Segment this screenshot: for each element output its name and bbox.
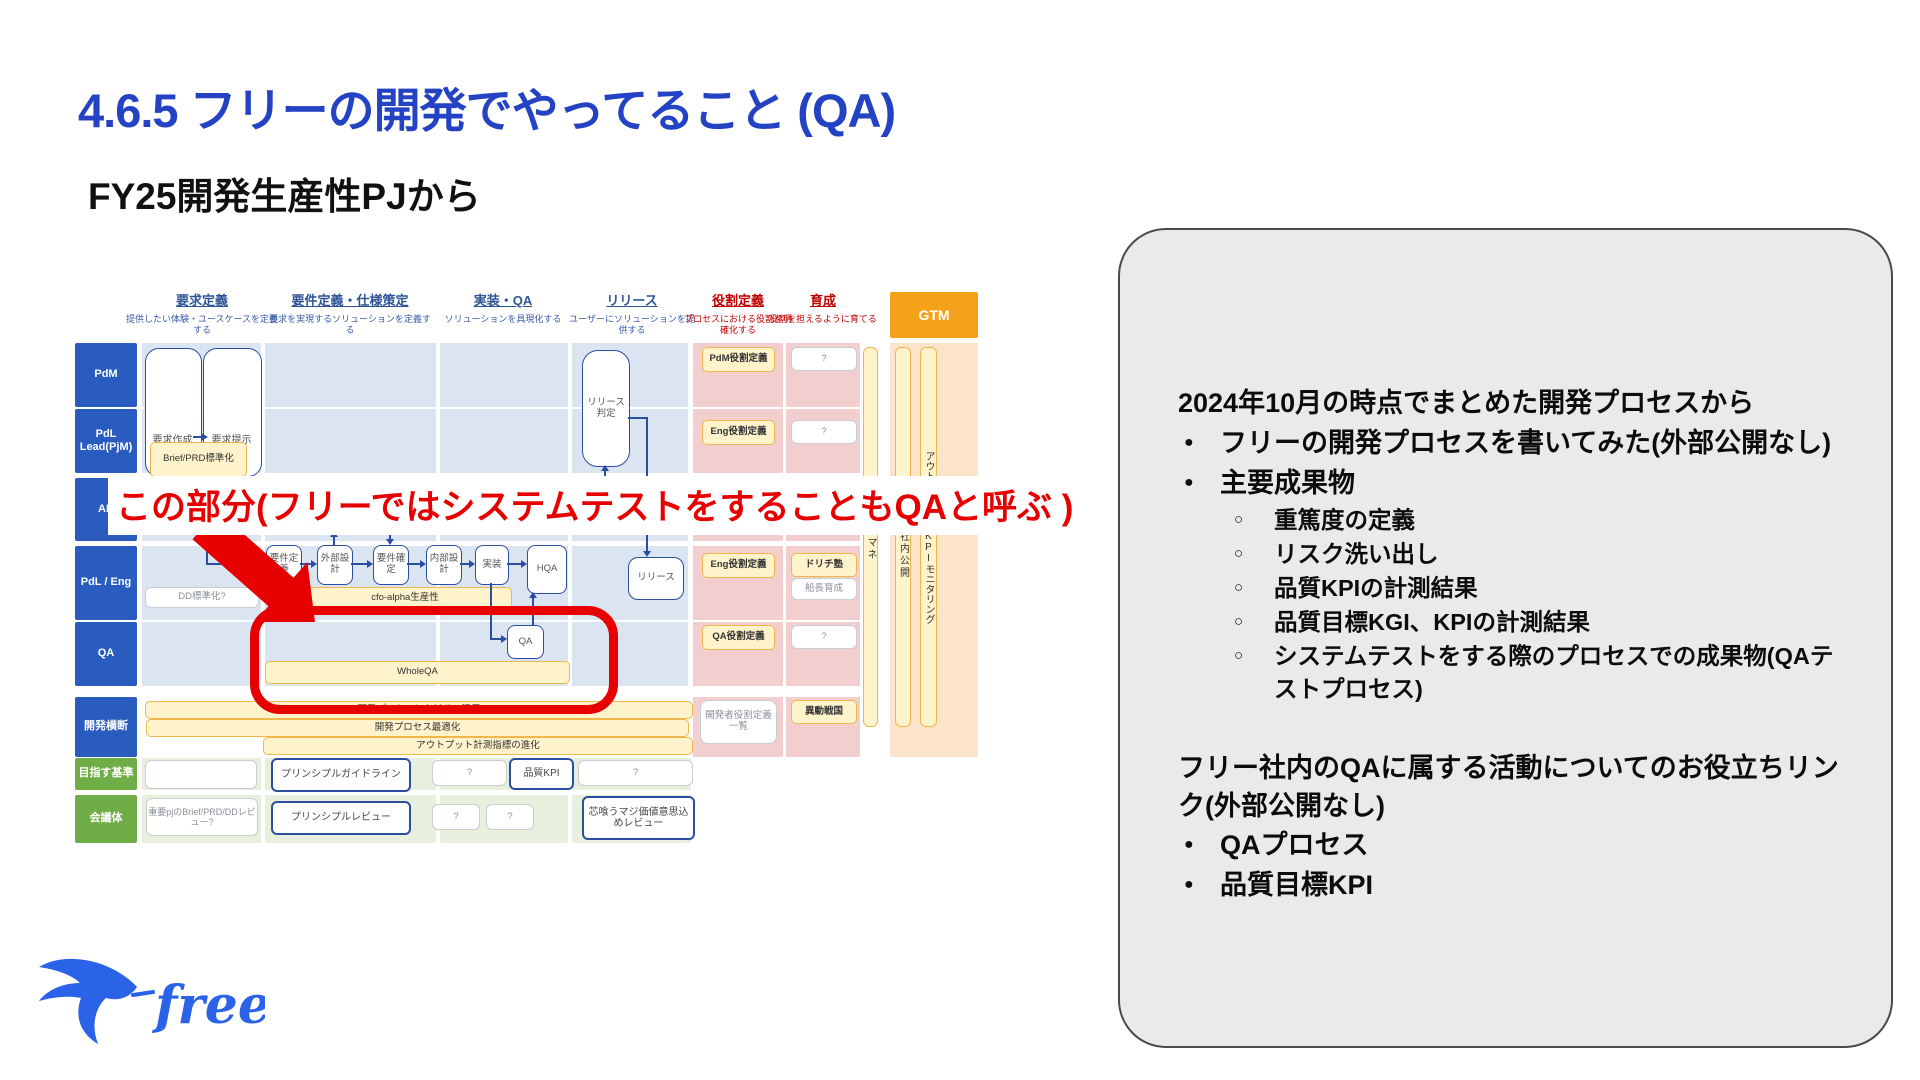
panel-sub-list: 重篤度の定義 リスク洗い出し 品質KPIの計測結果 品質目標KGI、KPIの計測…	[1178, 504, 1846, 705]
ikusei-q-qa: ?	[791, 625, 857, 649]
yoken-kakutei-box: 要件確定	[373, 545, 409, 585]
ido-sengoku-box: 異動戦国	[791, 700, 857, 724]
map-kokai-bar: マップ社内公開	[895, 347, 911, 727]
process-saiteki-bar: 開発プロセス最適化	[146, 719, 689, 737]
sencho-box: 船長育成	[791, 578, 857, 600]
kaihatsusha-yakuwari-box: 開発者役割定義一覧	[700, 700, 777, 744]
panel-para-2: フリー社内のQAに属する活動についてのお役立ちリンク(外部公開なし)	[1178, 750, 1846, 826]
naremane-bar: ナレマネ	[863, 347, 878, 727]
row-label-pdm: PdM	[75, 343, 137, 407]
pdm-yakuwari-box: PdM役割定義	[702, 347, 775, 372]
col-desc-yokyu: 提供したい体験・ユースケースを定義する	[122, 314, 282, 337]
kaigi-q2-box: ?	[486, 804, 534, 830]
gtm-header: GTM	[890, 292, 978, 338]
notes-panel: 2024年10月の時点でまとめた開発プロセスから フリーの開発プロセスを書いてみ…	[1118, 228, 1893, 1048]
page-title: 4.6.5 フリーの開発でやってること (QA)	[78, 72, 895, 141]
row-label-kaihatsu-odan: 開発横断	[75, 697, 137, 757]
shinkuu-review-box: 芯喰うマジ価値意思込めレビュー	[582, 796, 695, 840]
sub-item-risk: リスク洗い出し	[1178, 538, 1846, 571]
freee-logo: freee	[25, 945, 265, 1050]
outcome-kpi-bar: アウトカム計測・KPIモニタリング	[920, 347, 937, 727]
panel-bullet-process: フリーの開発プロセスを書いてみた(外部公開なし)	[1178, 425, 1846, 463]
col-desc-jisso: ソリューションを具現化する	[428, 314, 578, 325]
eng-yakuwari-box-2: Eng役割定義	[702, 553, 775, 578]
panel-bullet-list-1: フリーの開発プロセスを書いてみた(外部公開なし) 主要成果物	[1178, 425, 1846, 503]
row-label-qa: QA	[75, 622, 137, 686]
col-header-ikusei: 育成	[773, 290, 873, 310]
qa-yakuwari-box: QA役割定義	[702, 625, 775, 650]
row-label-mezasu-kijun: 目指す基準	[75, 758, 137, 790]
release-box: リリース	[628, 557, 684, 600]
juyo-pj-box: 重要pjのBrief/PRD/DDレビュー?	[146, 798, 258, 836]
hqa-box: HQA	[527, 545, 567, 594]
kijun-empty-box	[145, 760, 257, 789]
naibu-sekkei-box: 内部設計	[426, 545, 462, 585]
dorichi-box: ドリチ塾	[791, 553, 857, 577]
principle-guideline-box: プリンシプルガイドライン	[271, 758, 411, 792]
col-header-jisso-qa: 実装・QA	[443, 290, 563, 310]
release-hantei-box: リリース判定	[582, 350, 630, 467]
col-gap-4	[783, 343, 786, 757]
col-desc-release: ユーザーにソリューションを提供する	[567, 314, 697, 337]
row-label-pdl-lead: PdL Lead(PjM)	[75, 409, 137, 473]
annotation-text: この部分(フリーではシステムテストをすることもQAと呼ぶ )	[108, 476, 1085, 535]
panel-bullet-qa-process: QAプロセス	[1178, 827, 1846, 865]
row-label-pdl-eng: PdL / Eng	[75, 546, 137, 620]
eng-yakuwari-box-1: Eng役割定義	[702, 420, 775, 445]
principle-review-box: プリンシプルレビュー	[271, 801, 411, 835]
kijun-q2-box: ?	[578, 760, 693, 786]
col-header-yokyu-teigi: 要求定義	[152, 290, 252, 310]
hinshitsu-kpi-box: 品質KPI	[509, 758, 574, 790]
output-shihyo-bar: アウトプット計測指標の進化	[263, 737, 693, 755]
panel-bullet-quality-kpi: 品質目標KPI	[1178, 867, 1846, 905]
col-desc-ikusei: 役割を担えるように育てる	[768, 314, 878, 325]
sub-item-system-test: システムテストをする際のプロセスでの成果物(QAテストプロセス)	[1178, 640, 1846, 706]
jisso-box: 実装	[475, 545, 509, 585]
panel-para-1: 2024年10月の時点でまとめた開発プロセスから	[1178, 385, 1846, 423]
kijun-q1-box: ?	[432, 760, 507, 786]
sub-item-severity: 重篤度の定義	[1178, 504, 1846, 537]
row-label-kaigitai: 会議体	[75, 795, 137, 843]
col-header-release: リリース	[572, 290, 692, 310]
slide-subtitle: FY25開発生産性PJから	[88, 166, 481, 220]
kaigi-q1-box: ?	[432, 804, 480, 830]
ikusei-q-pdm: ?	[791, 347, 857, 371]
panel-bullet-deliverables: 主要成果物	[1178, 465, 1846, 503]
panel-bullet-list-2: QAプロセス 品質目標KPI	[1178, 827, 1846, 905]
freee-logo-text: freee	[151, 975, 265, 1036]
col-header-yoken-teigi: 要件定義・仕様策定	[275, 290, 425, 310]
sub-item-kgi-kpi-result: 品質目標KGI、KPIの計測結果	[1178, 606, 1846, 639]
ikusei-q-pdl: ?	[791, 420, 857, 444]
col-desc-yoken: 要求を実現するソリューションを定義する	[265, 314, 435, 337]
brief-prd-box: Brief/PRD標準化	[150, 442, 247, 477]
sub-item-kpi-result: 品質KPIの計測結果	[1178, 572, 1846, 605]
